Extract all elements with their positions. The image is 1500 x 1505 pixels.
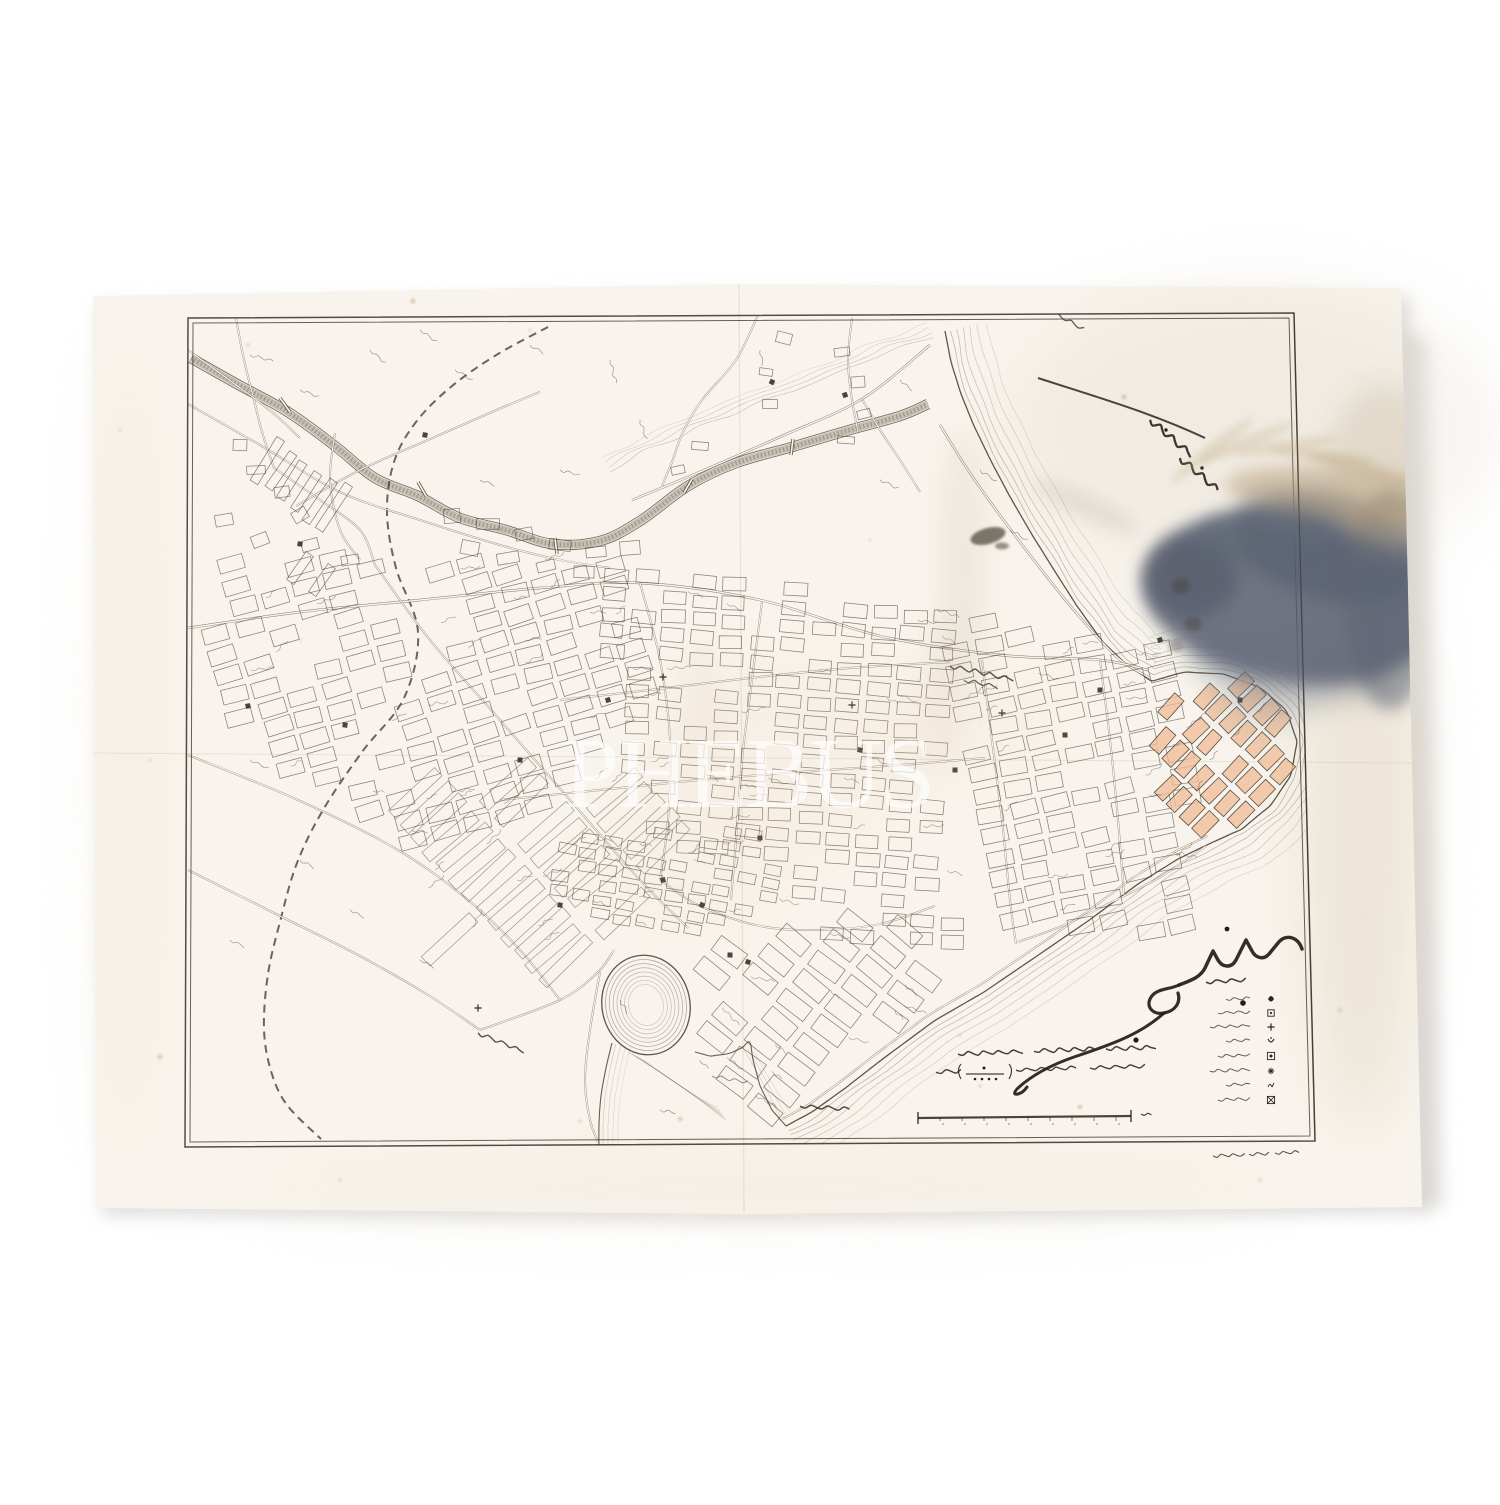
svg-text:PHEBUS: PHEBUS xyxy=(563,717,932,829)
